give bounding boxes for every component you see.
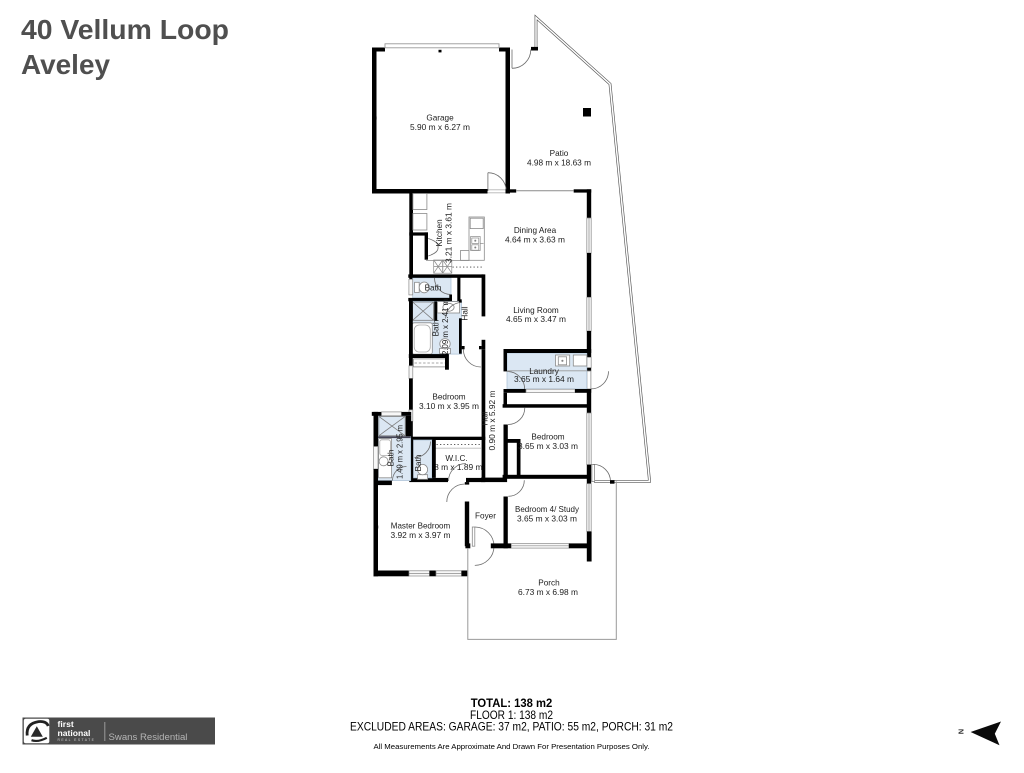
svg-text:2.09 m x 2.41 m: 2.09 m x 2.41 m — [441, 299, 450, 355]
svg-text:3.65 m x 1.64 m: 3.65 m x 1.64 m — [514, 375, 574, 384]
svg-text:Aveley: Aveley — [21, 49, 110, 80]
svg-text:Bath: Bath — [425, 284, 442, 293]
svg-text:4.98 m x 18.63 m: 4.98 m x 18.63 m — [527, 159, 591, 168]
svg-text:3.10 m x 3.95 m: 3.10 m x 3.95 m — [419, 402, 479, 411]
svg-text:Dining Area: Dining Area — [514, 226, 557, 235]
svg-text:Bedroom: Bedroom — [432, 393, 465, 402]
svg-text:Bedroom: Bedroom — [531, 433, 564, 442]
svg-text:3.65 m x 3.03 m: 3.65 m x 3.03 m — [517, 515, 577, 524]
svg-text:40 Vellum Loop: 40 Vellum Loop — [21, 14, 229, 45]
svg-text:Foyer: Foyer — [475, 512, 496, 521]
svg-text:4.65 m x 3.47 m: 4.65 m x 3.47 m — [506, 315, 566, 324]
svg-text:N: N — [957, 729, 966, 734]
svg-text:1.49 m x 2.95 m: 1.49 m x 2.95 m — [396, 425, 405, 479]
svg-text:Living Room: Living Room — [513, 306, 559, 315]
svg-text:Bath: Bath — [387, 449, 396, 466]
svg-text:Kitchen: Kitchen — [435, 219, 444, 247]
svg-text:national: national — [58, 728, 91, 738]
svg-text:W.I.C.: W.I.C. — [445, 454, 467, 463]
svg-text:Porch: Porch — [538, 579, 560, 588]
svg-text:Bath: Bath — [414, 454, 423, 471]
svg-text:Master Bedroom: Master Bedroom — [391, 522, 451, 531]
svg-text:3.92 m x 3.97 m: 3.92 m x 3.97 m — [391, 531, 451, 540]
svg-text:Hall: Hall — [461, 306, 470, 320]
svg-text:3.21 m x 3.61 m: 3.21 m x 3.61 m — [445, 203, 454, 263]
svg-text:0.90 m x 5.92 m: 0.90 m x 5.92 m — [488, 390, 497, 450]
svg-text:Garage: Garage — [426, 114, 454, 123]
svg-text:EXCLUDED AREAS: GARAGE: 37 m2,: EXCLUDED AREAS: GARAGE: 37 m2, PATIO: 55… — [350, 721, 673, 734]
svg-text:Bedroom 4/ Study: Bedroom 4/ Study — [515, 505, 580, 514]
svg-text:5.90 m x 6.27 m: 5.90 m x 6.27 m — [410, 123, 470, 132]
svg-text:All Measurements Are Approxima: All Measurements Are Approximate And Dra… — [374, 742, 650, 751]
svg-text:Patio: Patio — [550, 149, 569, 158]
svg-text:4.64 m x 3.63 m: 4.64 m x 3.63 m — [505, 236, 565, 245]
svg-text:Swans Residential: Swans Residential — [109, 732, 188, 743]
svg-text:Bath: Bath — [432, 319, 441, 336]
svg-text:6.73 m x 6.98 m: 6.73 m x 6.98 m — [518, 588, 578, 597]
svg-text:3.65 m x 3.03 m: 3.65 m x 3.03 m — [518, 442, 578, 451]
svg-text:REAL ESTATE: REAL ESTATE — [58, 738, 96, 742]
